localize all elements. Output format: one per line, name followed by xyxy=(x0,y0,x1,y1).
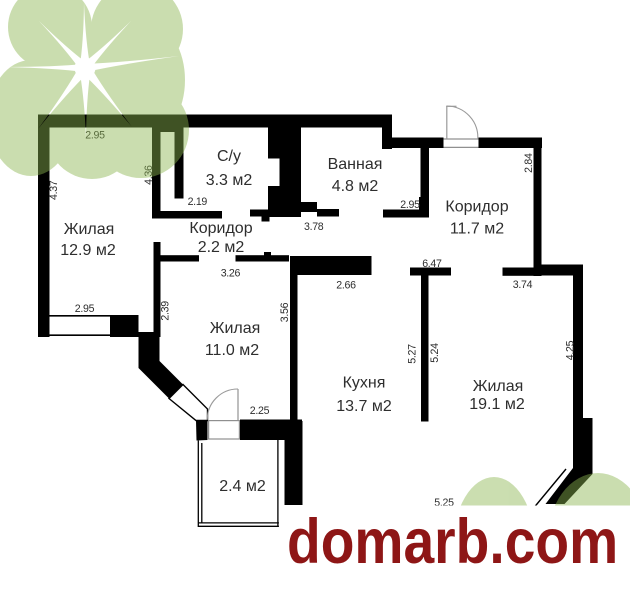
svg-text:6.47: 6.47 xyxy=(422,258,442,270)
svg-text:Жилая: Жилая xyxy=(210,320,261,337)
svg-text:12.9 м2: 12.9 м2 xyxy=(60,242,116,259)
svg-text:Коридор: Коридор xyxy=(445,198,508,215)
svg-text:3.74: 3.74 xyxy=(513,279,533,291)
svg-text:Жилая: Жилая xyxy=(473,378,524,395)
svg-text:5.27: 5.27 xyxy=(407,344,419,364)
svg-text:Жилая: Жилая xyxy=(64,221,115,238)
svg-text:19.1 м2: 19.1 м2 xyxy=(469,396,525,413)
svg-text:Кухня: Кухня xyxy=(343,375,386,392)
svg-text:2.19: 2.19 xyxy=(188,196,208,208)
svg-text:2.25: 2.25 xyxy=(250,405,270,417)
svg-text:2.95: 2.95 xyxy=(75,303,95,315)
svg-text:2.2 м2: 2.2 м2 xyxy=(198,239,245,256)
svg-text:4.8 м2: 4.8 м2 xyxy=(332,178,379,195)
svg-text:3.78: 3.78 xyxy=(304,221,324,233)
svg-text:3.56: 3.56 xyxy=(279,302,291,322)
svg-text:5.24: 5.24 xyxy=(429,343,441,363)
svg-text:Коридор: Коридор xyxy=(189,220,252,237)
svg-text:4.25: 4.25 xyxy=(564,340,576,360)
svg-text:С/у: С/у xyxy=(217,148,241,165)
svg-text:2.84: 2.84 xyxy=(523,153,535,173)
svg-text:2.39: 2.39 xyxy=(159,301,171,321)
svg-text:Ванная: Ванная xyxy=(328,156,383,173)
svg-text:2.95: 2.95 xyxy=(400,199,420,211)
svg-text:domarb.com: domarb.com xyxy=(287,506,618,577)
svg-text:11.0 м2: 11.0 м2 xyxy=(205,342,259,359)
svg-text:4.37: 4.37 xyxy=(48,180,60,200)
svg-text:3.3 м2: 3.3 м2 xyxy=(206,172,253,189)
svg-text:13.7 м2: 13.7 м2 xyxy=(336,398,392,415)
svg-text:2.4 м2: 2.4 м2 xyxy=(219,478,266,495)
svg-text:3.26: 3.26 xyxy=(221,268,241,280)
svg-text:11.7 м2: 11.7 м2 xyxy=(450,221,504,238)
svg-text:2.66: 2.66 xyxy=(336,280,356,292)
